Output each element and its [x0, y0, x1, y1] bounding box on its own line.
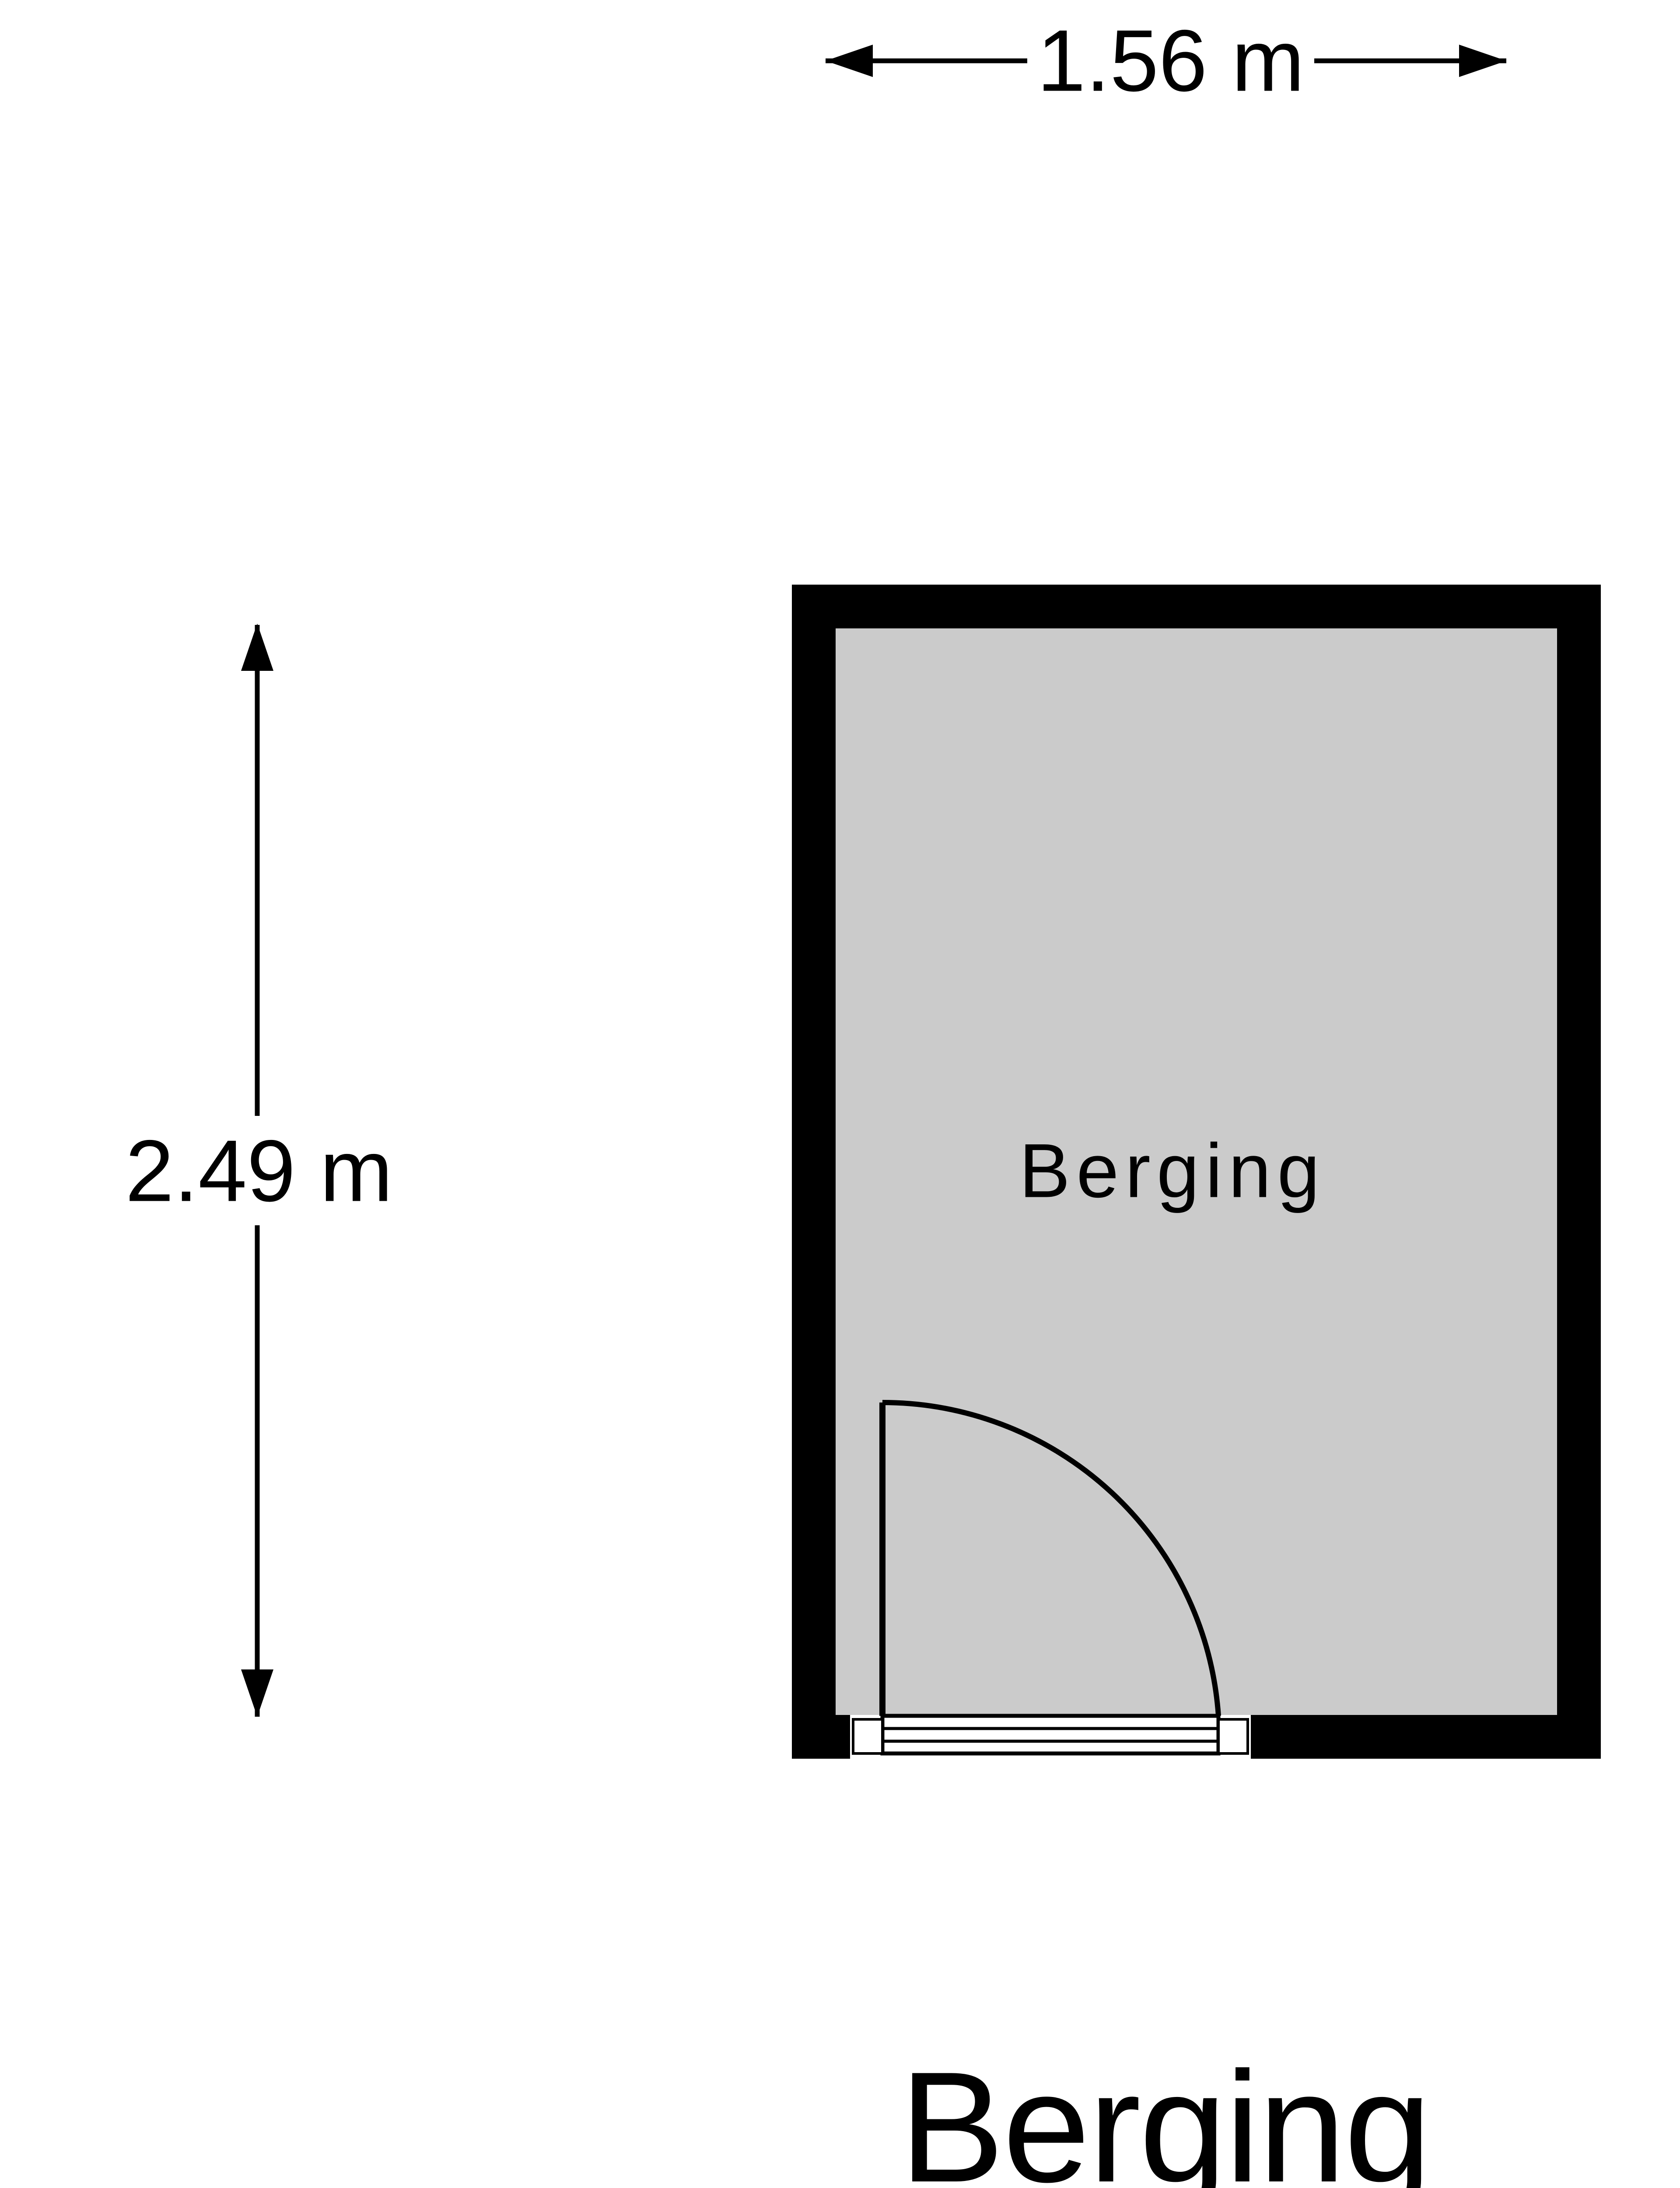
height-dimension: 2.49 m — [115, 624, 403, 1717]
width-dimension: 1.56 m — [826, 9, 1506, 113]
door-jamb-right — [1218, 1719, 1248, 1753]
room-name-label: Berging — [1019, 1129, 1326, 1214]
width-dimension-label: 1.56 m — [1037, 12, 1304, 110]
door-threshold — [882, 1716, 1218, 1753]
door-jamb-left — [853, 1719, 882, 1753]
floorplan-canvas: 1.56 m 2.49 m Berging Berging — [0, 0, 1680, 2188]
arrowhead-left-icon — [826, 45, 873, 77]
arrowhead-down-icon — [241, 1669, 273, 1717]
arrowhead-up-icon — [241, 624, 273, 671]
arrowhead-right-icon — [1459, 45, 1506, 77]
height-dimension-label: 2.49 m — [125, 1122, 392, 1220]
plan-title: Berging — [899, 2039, 1430, 2188]
